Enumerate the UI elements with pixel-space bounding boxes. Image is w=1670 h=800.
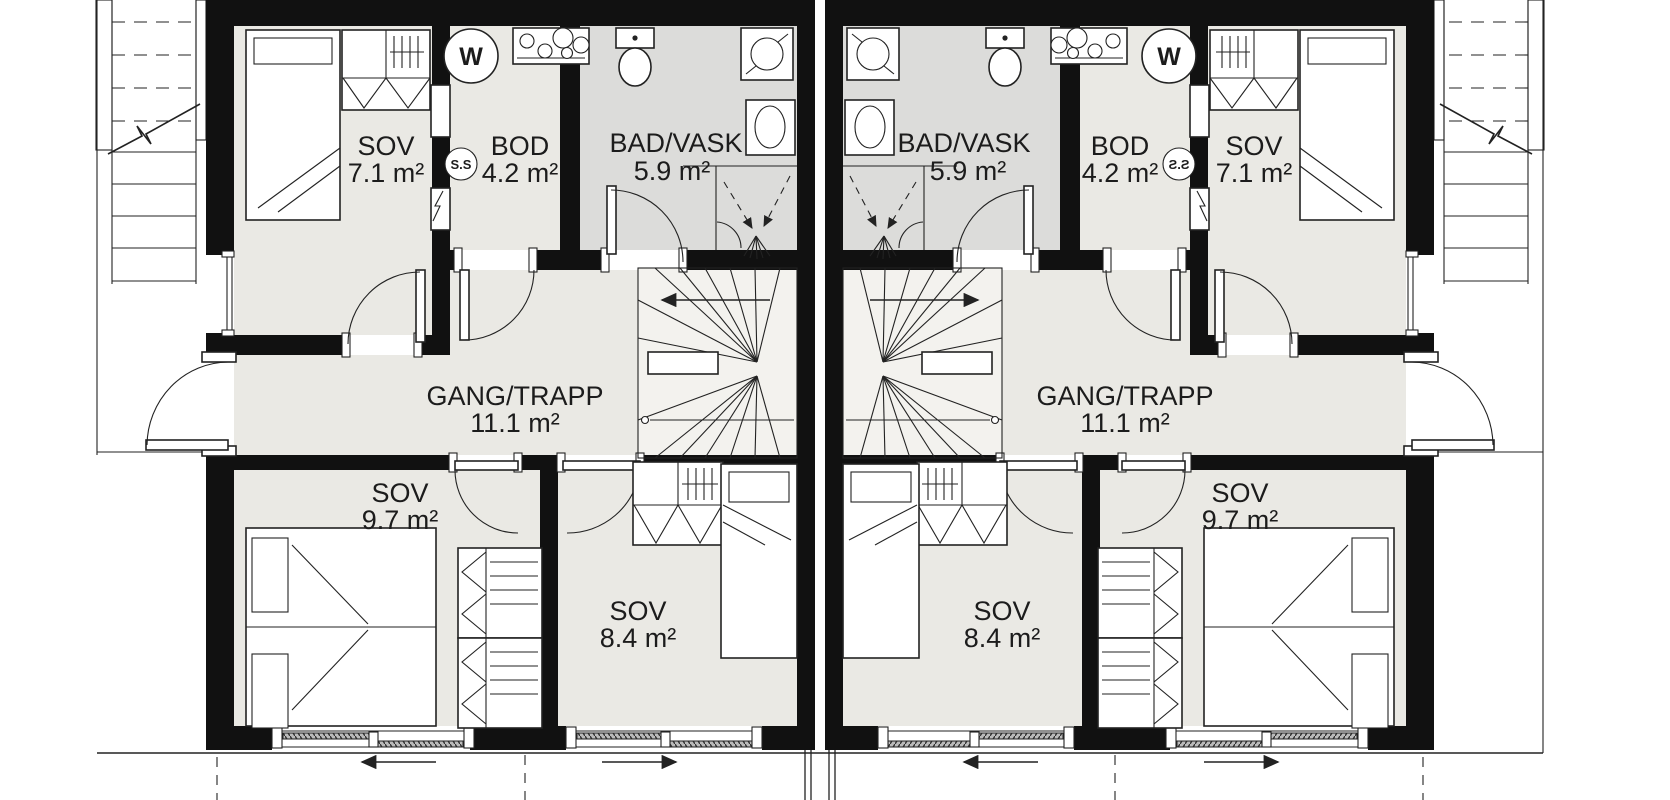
room-area-storage-right: 4.2 m² [1082,158,1159,188]
window-bedroom-center [566,727,762,762]
fuse-box-label-left: S.S [451,157,472,172]
room-label-bedroom-west-right: SOV [1211,478,1268,508]
bed-single-top [246,30,340,220]
room-area-bedroom-center-right: 8.4 m² [964,623,1041,653]
room-area-bedroom-center-left: 8.4 m² [600,623,677,653]
room-label-storage-right: BOD [1091,131,1150,161]
stair-treads [112,152,196,281]
wardrobe-top [342,30,430,110]
stove-icon [513,28,589,64]
room-label-bedroom-top-left: SOV [357,131,414,161]
room-area-bathroom-left: 5.9 m² [634,156,711,186]
washing-machine-label-left: W [459,43,483,71]
room-label-bathroom-left: BAD/VASK [609,128,742,158]
washing-machine-label-right: W [1157,43,1181,71]
entry-door [146,352,236,456]
room-area-bedroom-west-left: 9.7 m² [362,505,439,535]
room-area-bathroom-right: 5.9 m² [930,156,1007,186]
toilet-icon [616,28,654,86]
fuse-box-label-right: S.S [1168,157,1189,172]
room-area-bedroom-west-right: 9.7 m² [1202,505,1279,535]
room-label-storage-left: BOD [491,131,550,161]
room-area-hall-right: 11.1 m² [1080,408,1170,438]
outdoor-stair [96,0,206,455]
bed-double [246,528,436,728]
room-area-bedroom-top-right: 7.1 m² [1216,158,1293,188]
room-label-bedroom-center-right: SOV [973,596,1030,626]
room-area-bedroom-top-left: 7.1 m² [348,158,425,188]
break-line [108,104,200,154]
wardrobes-west [458,548,542,728]
room-label-bedroom-top-right: SOV [1225,131,1282,161]
room-label-bedroom-west-left: SOV [371,478,428,508]
wardrobe-center [633,462,723,545]
room-label-hall-left: GANG/TRAPP [426,381,603,411]
room-area-hall-left: 11.1 m² [470,408,560,438]
floor-plan-page: SOV 7.1 m² BOD 4.2 m² BAD/VASK 5.9 m² GA… [0,0,1670,800]
room-area-storage-left: 4.2 m² [482,158,559,188]
room-label-bedroom-center-left: SOV [609,596,666,626]
side-window [222,251,234,336]
washbasin-icon [746,100,795,155]
floor-plan-canvas: SOV 7.1 m² BOD 4.2 m² BAD/VASK 5.9 m² GA… [0,0,1670,800]
room-label-bathroom-right: BAD/VASK [897,128,1030,158]
stair-above-dashed-treads [112,22,196,121]
bed-single-center [721,464,797,658]
window-bedroom-west [272,727,474,762]
fan-icon [741,28,793,80]
room-label-hall-right: GANG/TRAPP [1036,381,1213,411]
